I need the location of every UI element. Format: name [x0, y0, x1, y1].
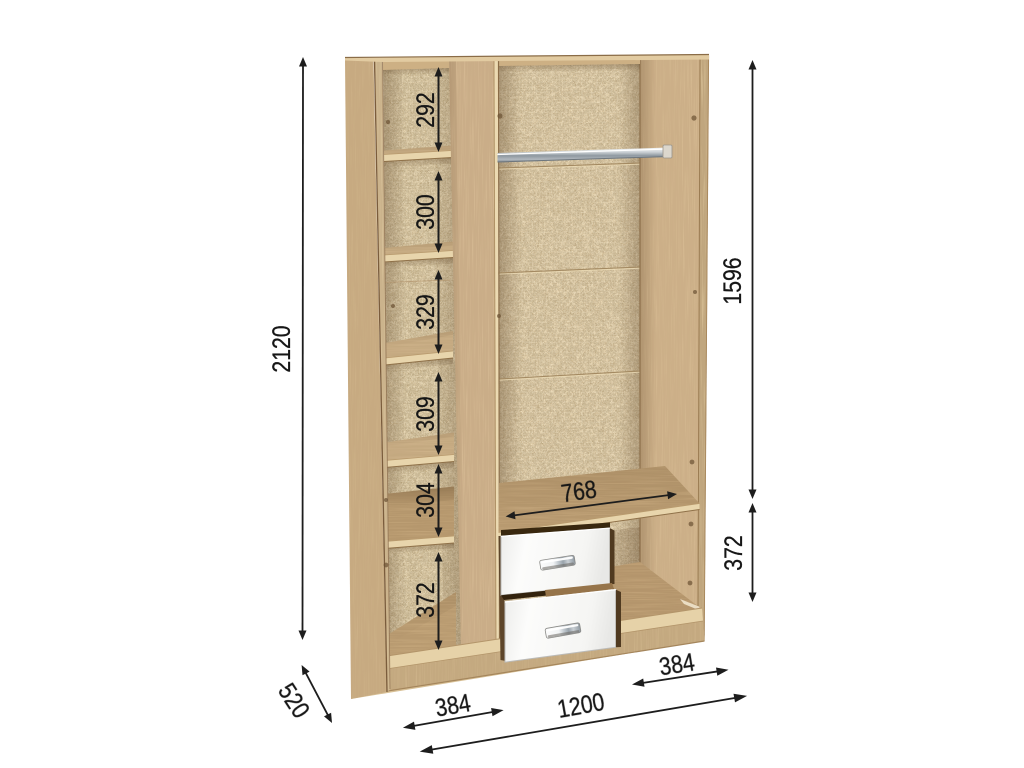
svg-text:768: 768	[560, 476, 599, 509]
svg-text:372: 372	[720, 535, 748, 570]
svg-text:304: 304	[412, 482, 440, 517]
svg-text:1596: 1596	[719, 257, 747, 304]
svg-text:300: 300	[412, 194, 440, 229]
svg-text:329: 329	[412, 294, 440, 329]
svg-text:372: 372	[412, 582, 440, 617]
svg-text:2120: 2120	[268, 325, 296, 372]
svg-text:292: 292	[412, 92, 440, 127]
svg-text:309: 309	[412, 396, 440, 431]
svg-text:384: 384	[657, 648, 696, 681]
